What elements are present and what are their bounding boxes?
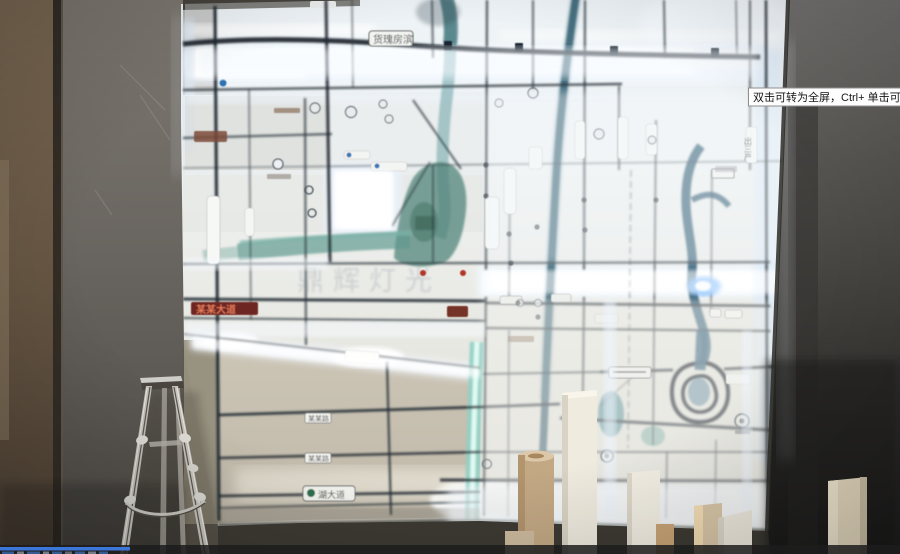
svg-text:双击可转为全屏，Ctrl+ 单击可转为: 双击可转为全屏，Ctrl+ 单击可转为 xyxy=(753,90,900,104)
